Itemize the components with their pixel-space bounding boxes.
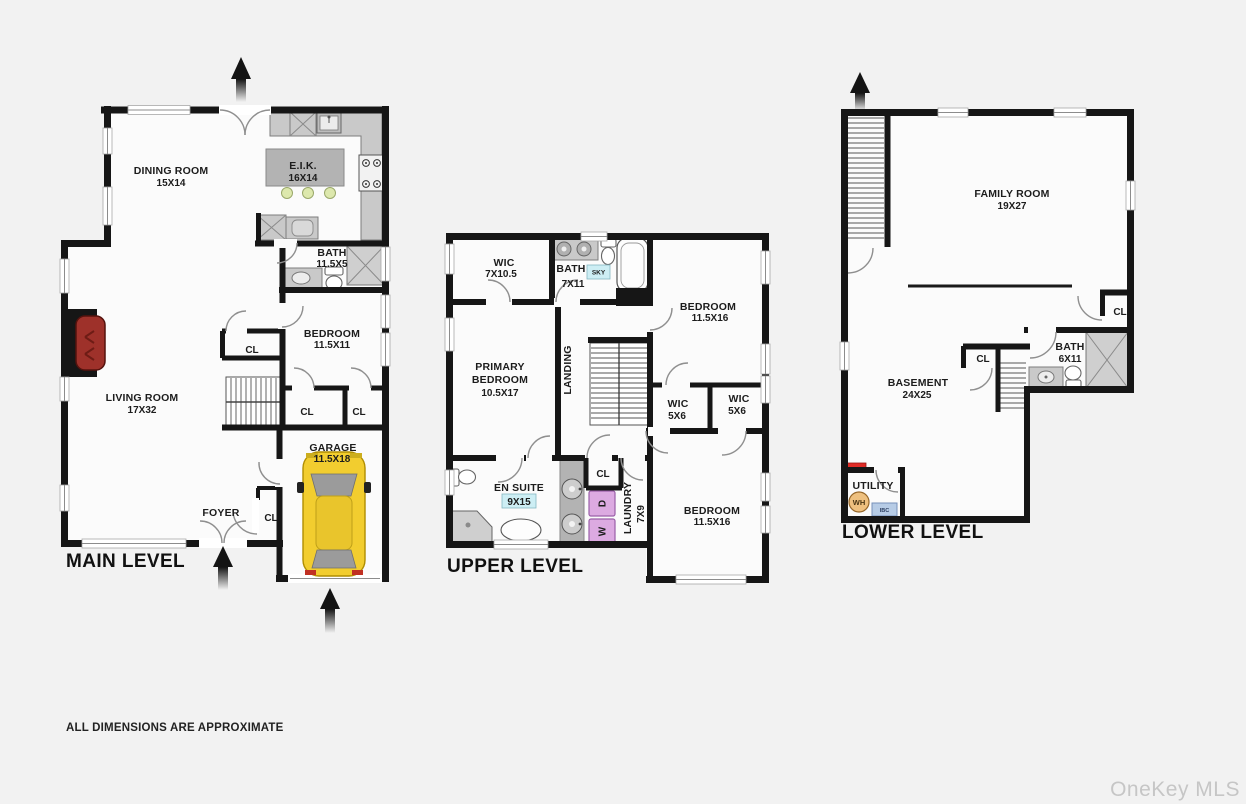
upper-bedroom2-label: BEDROOM xyxy=(684,505,740,517)
wic1-label: WIC xyxy=(667,398,688,410)
toilet-icon xyxy=(1065,366,1081,380)
ensuite-label: EN SUITE xyxy=(494,482,544,494)
primary-bedroom-label1: PRIMARY xyxy=(475,361,524,373)
dining-room-label: DINING ROOM xyxy=(134,165,209,177)
main-stairs xyxy=(226,377,280,427)
mls-watermark: OneKey MLS xyxy=(1110,778,1240,801)
lower-closet2-label: CL xyxy=(976,354,989,365)
living-room-label: LIVING ROOM xyxy=(106,392,179,404)
family-room-dims: 19X27 xyxy=(998,201,1027,212)
dimensions-disclaimer: ALL DIMENSIONS ARE APPROXIMATE xyxy=(66,722,284,734)
car-icon xyxy=(297,452,371,576)
floorplan-page: DINING ROOM 15X14 E.I.K. 16X14 BATH 11.5… xyxy=(0,0,1246,804)
wic2-label: WIC xyxy=(728,393,749,405)
floorplan-svg: DINING ROOM 15X14 E.I.K. 16X14 BATH 11.5… xyxy=(0,0,1246,804)
living-room-dims: 17X32 xyxy=(128,405,157,416)
fireplace-icon xyxy=(63,309,105,377)
foyer-label: FOYER xyxy=(202,507,239,519)
garage-dims: 11.5X18 xyxy=(314,454,351,465)
wic2-dims: 5X6 xyxy=(728,406,746,417)
boiler-label: IBC xyxy=(880,508,890,514)
eik-dims: 16X14 xyxy=(289,173,318,184)
main-level-plan: DINING ROOM 15X14 E.I.K. 16X14 BATH 11.5… xyxy=(60,57,390,633)
upper-closet-label: CL xyxy=(596,469,609,480)
skylight-label: SKY xyxy=(592,270,606,277)
pendant-lights-icon xyxy=(282,188,336,199)
ensuite-dims: 9X15 xyxy=(507,497,531,508)
bedroom-closet2-label: CL xyxy=(352,407,365,418)
wic-dims: 7X10.5 xyxy=(485,269,517,280)
stove-icon xyxy=(359,155,383,191)
upper-bedroom1-label: BEDROOM xyxy=(680,301,736,313)
primary-bedroom-dims: 10.5X17 xyxy=(481,388,519,399)
foyer-closet-label: CL xyxy=(264,513,277,524)
water-heater-label: WH xyxy=(853,498,866,507)
dryer-label: D xyxy=(598,500,609,507)
primary-bedroom-label2: BEDROOM xyxy=(472,374,528,386)
stairs-up-arrow-icon xyxy=(850,72,870,111)
main-bath-label: BATH xyxy=(317,247,346,259)
dining-room-dims: 15X14 xyxy=(157,178,186,189)
lower-bath-dims: 6X11 xyxy=(1059,354,1082,365)
upper-stairs xyxy=(590,343,648,425)
upper-bath-label: BATH xyxy=(556,263,585,275)
bedroom-closet1-label: CL xyxy=(300,407,313,418)
upper-level-title: UPPER LEVEL xyxy=(447,556,583,577)
lower-closet1-label: CL xyxy=(1113,307,1126,318)
lower-bath-label: BATH xyxy=(1055,341,1084,353)
kitchen-sink-icon xyxy=(317,112,341,133)
lower-level-plan: FAMILY ROOM 19X27 CL BATH 6X11 CL BASEME… xyxy=(840,72,1135,543)
main-bedroom-label: BEDROOM xyxy=(304,328,360,340)
laundry-label: LAUNDRY xyxy=(622,482,634,534)
eik-label: E.I.K. xyxy=(289,160,316,172)
landing-label: LANDING xyxy=(562,345,574,394)
wic-label: WIC xyxy=(493,257,514,269)
garage-label: GARAGE xyxy=(309,442,356,454)
hall-closet-label: CL xyxy=(245,345,258,356)
lower-level-title: LOWER LEVEL xyxy=(842,522,984,543)
upper-bath-dims: 7X11 xyxy=(562,279,585,290)
wic1-dims: 5X6 xyxy=(668,411,686,422)
main-bath-dims: 11.5X5 xyxy=(316,259,348,270)
family-room-label: FAMILY ROOM xyxy=(974,188,1049,200)
laundry-dims: 7X9 xyxy=(636,505,647,523)
washer-label: W xyxy=(598,526,609,536)
upper-level-plan: WIC 7X10.5 BATH 7X11 SKY BEDROOM 11.5X16… xyxy=(445,232,770,584)
basement-dims: 24X25 xyxy=(903,390,932,401)
basement-label: BASEMENT xyxy=(888,377,949,389)
upper-bedroom2-dims: 11.5X16 xyxy=(694,517,731,528)
main-bedroom-dims: 11.5X11 xyxy=(314,340,351,351)
utility-label: UTILITY xyxy=(852,480,893,492)
upper-bedroom1-dims: 11.5X16 xyxy=(692,313,729,324)
soaking-tub-icon xyxy=(501,519,541,541)
main-level-title: MAIN LEVEL xyxy=(66,551,185,572)
